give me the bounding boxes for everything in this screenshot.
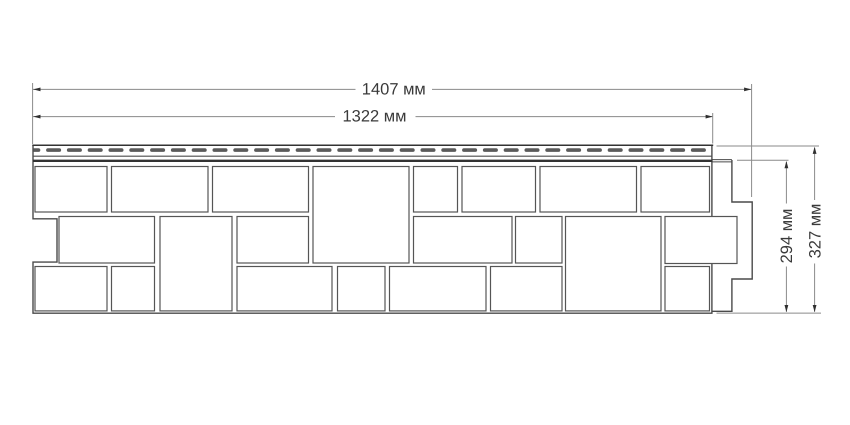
svg-text:294 мм: 294 мм	[778, 209, 796, 264]
svg-text:1322 мм: 1322 мм	[343, 107, 407, 125]
svg-text:1407 мм: 1407 мм	[362, 80, 426, 98]
svg-text:327 мм: 327 мм	[806, 204, 824, 259]
